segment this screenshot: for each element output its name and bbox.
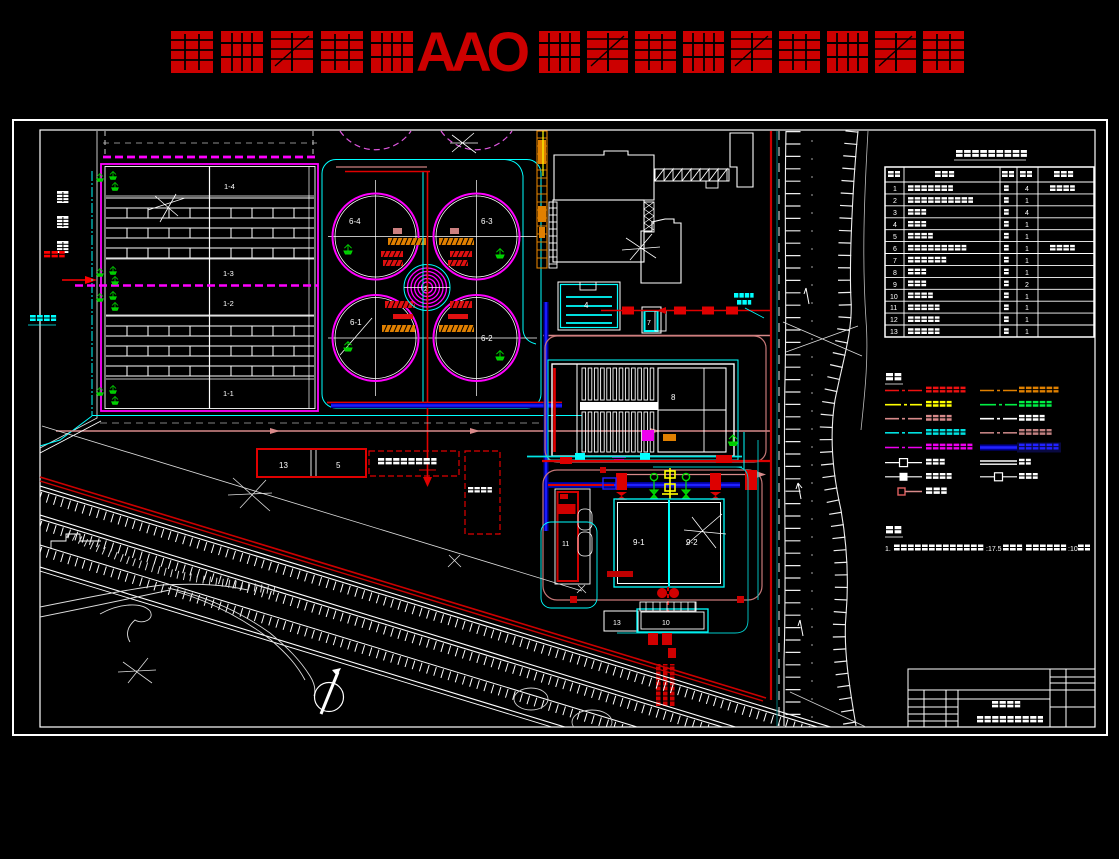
svg-text:1: 1	[1025, 305, 1029, 312]
svg-text:2: 2	[1025, 282, 1029, 289]
svg-text:6-1: 6-1	[350, 318, 362, 327]
svg-text:1-2: 1-2	[223, 299, 234, 308]
svg-text:5: 5	[893, 234, 897, 241]
svg-text:4: 4	[1025, 210, 1029, 217]
svg-text:1: 1	[1025, 258, 1029, 265]
svg-text:1: 1	[1025, 294, 1029, 301]
svg-text:6-3: 6-3	[481, 217, 493, 226]
svg-text:1: 1	[1025, 198, 1029, 205]
svg-text:1: 1	[1025, 222, 1029, 229]
svg-text:6: 6	[893, 246, 897, 253]
svg-text:13: 13	[279, 461, 288, 470]
svg-text:7: 7	[893, 258, 897, 265]
svg-text:4: 4	[893, 222, 897, 229]
svg-text:9: 9	[893, 282, 897, 289]
svg-text:10: 10	[890, 294, 898, 301]
svg-text:11: 11	[890, 305, 897, 312]
svg-text:1: 1	[1025, 329, 1029, 336]
svg-text::17.5: :17.5	[986, 546, 1002, 553]
svg-text:3: 3	[893, 210, 897, 217]
svg-text:9-1: 9-1	[633, 538, 645, 547]
svg-text:13: 13	[613, 620, 621, 627]
svg-text:7: 7	[647, 320, 651, 327]
svg-text::10: :10	[1068, 546, 1078, 553]
svg-text:AAO: AAO	[416, 20, 530, 83]
svg-text:1: 1	[893, 186, 897, 193]
svg-text:13: 13	[890, 329, 898, 336]
svg-text:8: 8	[671, 393, 676, 402]
svg-text:1: 1	[1025, 246, 1029, 253]
svg-text:1: 1	[1025, 317, 1029, 324]
svg-text:10: 10	[662, 620, 670, 627]
svg-text:4: 4	[1025, 186, 1029, 193]
svg-text:8: 8	[893, 270, 897, 277]
svg-text:4: 4	[584, 301, 589, 310]
svg-text:11: 11	[562, 541, 569, 548]
svg-text:2: 2	[893, 198, 897, 205]
svg-text:1-4: 1-4	[224, 182, 235, 191]
svg-text:12: 12	[890, 317, 898, 324]
svg-text:1: 1	[1025, 234, 1029, 241]
svg-text:6-4: 6-4	[349, 217, 361, 226]
svg-text:6-2: 6-2	[481, 334, 493, 343]
svg-text:1-3: 1-3	[223, 269, 234, 278]
svg-text:5: 5	[336, 461, 341, 470]
svg-text:1.: 1.	[885, 546, 891, 553]
svg-text:1: 1	[1025, 270, 1029, 277]
svg-text:1-1: 1-1	[223, 389, 234, 398]
